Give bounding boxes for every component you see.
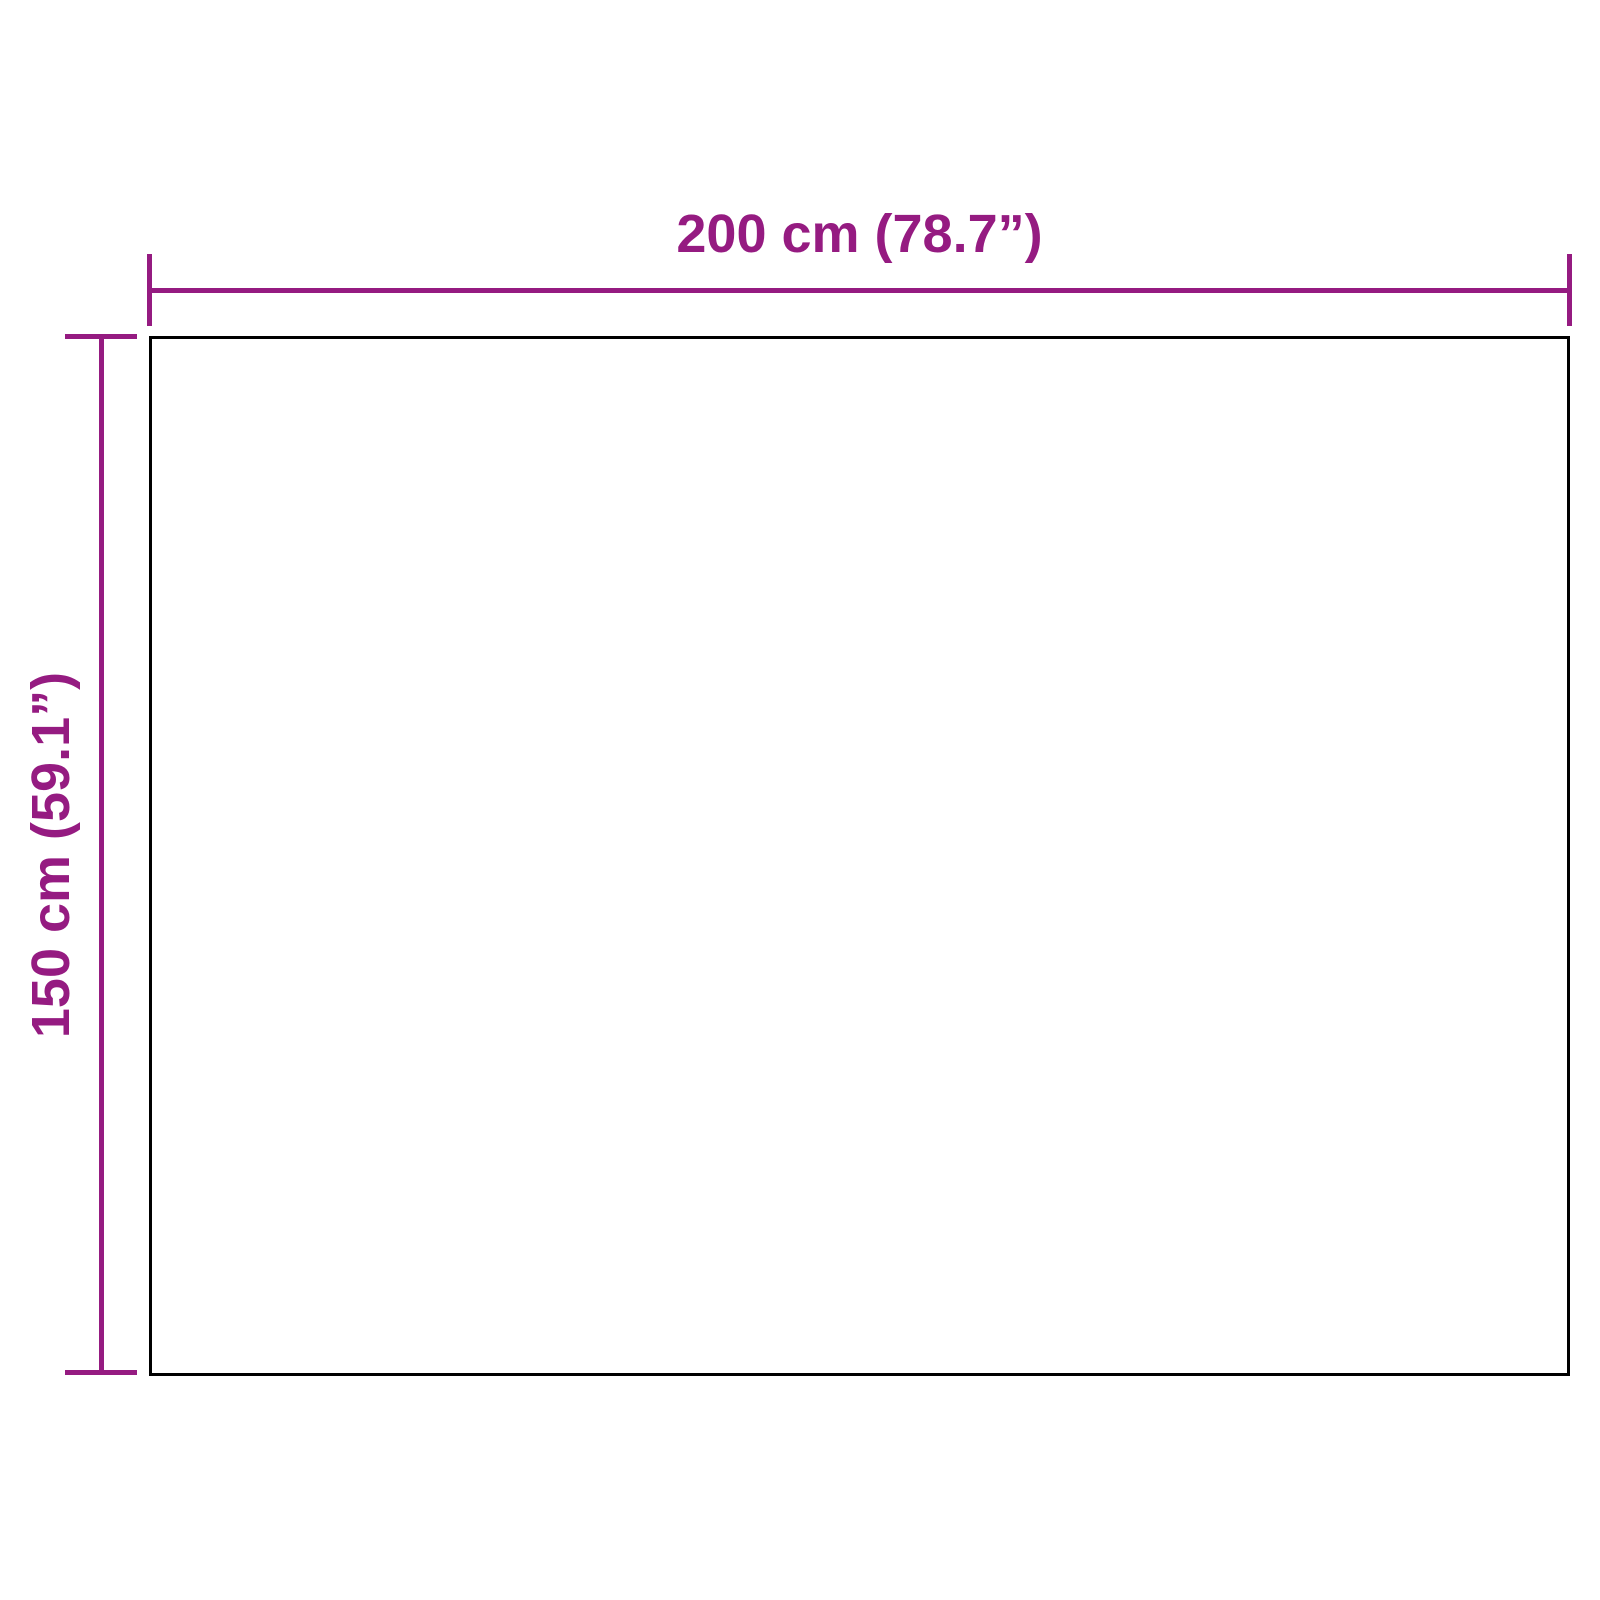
- width-dimension-line: [147, 288, 1572, 293]
- width-dimension-right-tick: [1567, 254, 1572, 326]
- height-dimension-bottom-tick: [65, 1370, 137, 1375]
- product-outline-rectangle: [149, 336, 1570, 1376]
- width-dimension-left-tick: [147, 254, 152, 326]
- height-dimension-top-tick: [65, 334, 137, 339]
- height-dimension-line: [99, 337, 104, 1374]
- diagram-canvas: 200 cm (78.7”) 150 cm (59.1”): [0, 0, 1600, 1600]
- height-dimension-label: 150 cm (59.1”): [24, 672, 78, 1038]
- width-dimension-label: 200 cm (78.7”): [147, 207, 1572, 261]
